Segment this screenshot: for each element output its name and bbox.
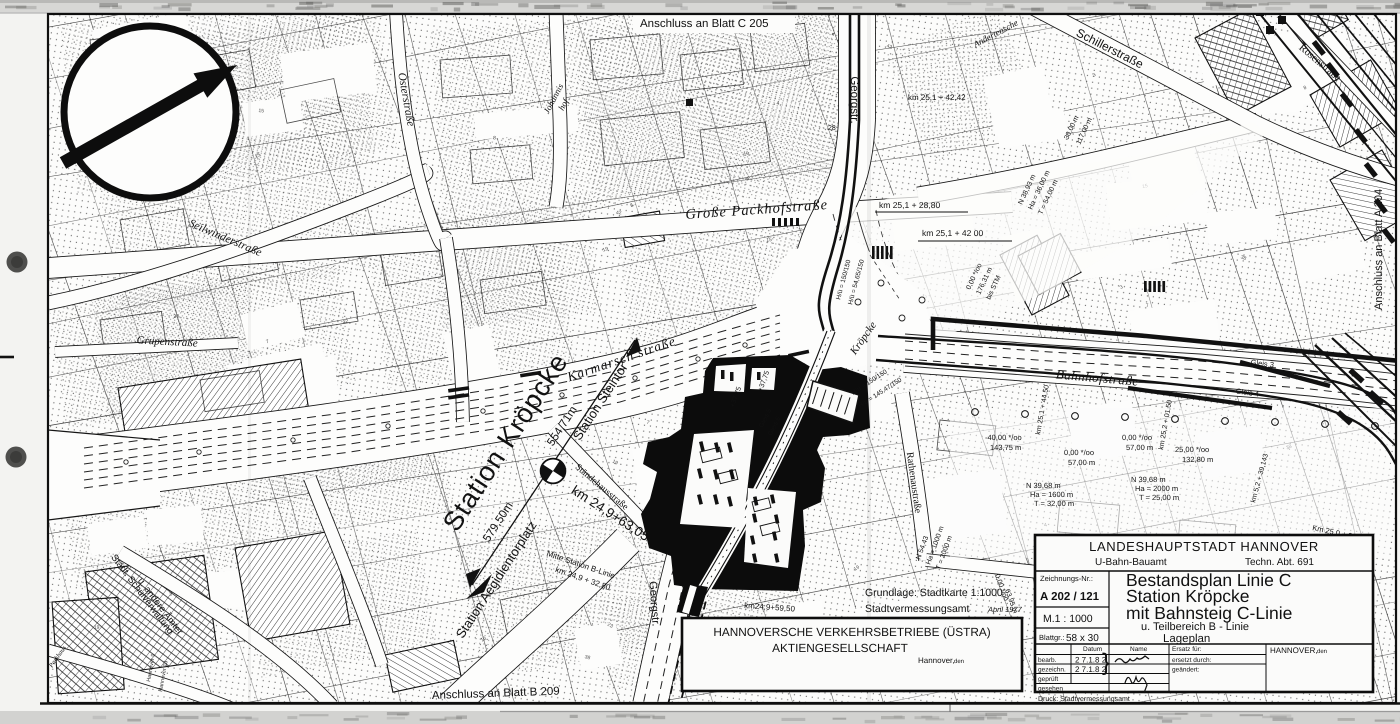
svg-text:132,80 m: 132,80 m [1182,455,1213,464]
svg-text:57,00 m: 57,00 m [1068,458,1095,467]
svg-text:km 25,1 + 28,80: km 25,1 + 28,80 [879,200,940,210]
svg-text:0,00 */oo: 0,00 */oo [1122,433,1152,442]
svg-text:57,00 m: 57,00 m [1126,443,1153,452]
svg-text:April 1977: April 1977 [987,605,1023,614]
svg-text:Anschluss an Blatt C 205: Anschluss an Blatt C 205 [640,18,769,30]
svg-text:Blattgr.:: Blattgr.: [1039,633,1064,642]
svg-text:gezeichn.: gezeichn. [1038,667,1066,674]
svg-text:Name: Name [1130,646,1148,653]
svg-text:U-Bahn-Bauamt: U-Bahn-Bauamt [1095,557,1167,568]
svg-text:19: 19 [94,625,100,631]
svg-text:bearb.: bearb. [1038,657,1057,664]
svg-text:Datum: Datum [1083,646,1102,653]
svg-text:ersetzt durch:: ersetzt durch: [1172,657,1212,664]
svg-text:}: } [1102,649,1110,676]
svg-text:geprüft: geprüft [1038,676,1058,683]
svg-text:HANNOVER,: HANNOVER, [1270,646,1318,655]
svg-text:km 25,1 + 42 00: km 25,1 + 42 00 [922,228,983,238]
svg-text:den: den [954,658,964,665]
svg-text:Anschluss an Blatt A 204: Anschluss an Blatt A 204 [1373,189,1385,310]
svg-text:Stadtvermessungsamt: Stadtvermessungsamt [865,603,970,615]
svg-text:Ersatz für:: Ersatz für: [1172,646,1202,653]
svg-text:A 202 / 121: A 202 / 121 [1040,591,1100,603]
svg-text:den: den [1317,648,1327,655]
svg-text:T = 32,00 m: T = 32,00 m [1034,499,1074,508]
svg-text:N 39,68 m: N 39,68 m [1026,481,1061,490]
svg-text:gesehen: gesehen [1038,686,1063,693]
svg-text:Lageplan: Lageplan [1163,633,1210,645]
svg-text:15: 15 [258,108,264,114]
svg-text:-40,00 */oo: -40,00 */oo [985,433,1022,442]
svg-text:0,00 */oo: 0,00 */oo [1064,448,1094,457]
svg-text:143,75 m: 143,75 m [990,443,1021,452]
svg-text:HANNOVERSCHE VERKEHRSBETRIEBE: HANNOVERSCHE VERKEHRSBETRIEBE (ÜSTRA) [713,625,990,639]
svg-text:Ha = 1600 m: Ha = 1600 m [1030,490,1073,499]
svg-text:AKTIENGESELLSCHAFT: AKTIENGESELLSCHAFT [772,641,908,655]
svg-text:Grundlage: Stadtkarte 1:1000: Grundlage: Stadtkarte 1:1000 [865,587,1003,599]
svg-text:u. Teilbereich B - Linie: u. Teilbereich B - Linie [1141,621,1249,633]
svg-text:42: 42 [616,210,622,216]
svg-text:Druck: Stadtvermessungsamt: Druck: Stadtvermessungsamt [1038,695,1130,703]
svg-text:mit Bahnsteig C-Linie: mit Bahnsteig C-Linie [1126,603,1292,623]
svg-text:N 39,68 m: N 39,68 m [1131,475,1166,484]
svg-text:M.1 : 1000: M.1 : 1000 [1043,613,1093,625]
svg-text:15: 15 [766,237,772,243]
svg-text:Zeichnungs-Nr.:: Zeichnungs-Nr.: [1040,574,1093,583]
svg-text:T = 25,00 m: T = 25,00 m [1139,493,1179,502]
svg-text:26: 26 [173,313,179,320]
svg-text:Techn. Abt. 691: Techn. Abt. 691 [1245,557,1314,568]
svg-text:geändert:: geändert: [1172,667,1200,674]
svg-text:25,00 */oo: 25,00 */oo [1175,445,1209,454]
svg-text:4: 4 [776,101,779,107]
svg-text:LANDESHAUPTSTADT HANNOVER: LANDESHAUPTSTADT HANNOVER [1089,539,1319,554]
svg-text:Hannover,: Hannover, [918,656,954,665]
svg-text:km 25,1 + 42,42: km 25,1 + 42,42 [908,93,966,102]
svg-text:28: 28 [828,125,836,132]
svg-text:Georgstr.: Georgstr. [848,76,860,123]
svg-text:58 x 30: 58 x 30 [1066,633,1099,644]
svg-text:Ha = 2000 m: Ha = 2000 m [1135,484,1178,493]
